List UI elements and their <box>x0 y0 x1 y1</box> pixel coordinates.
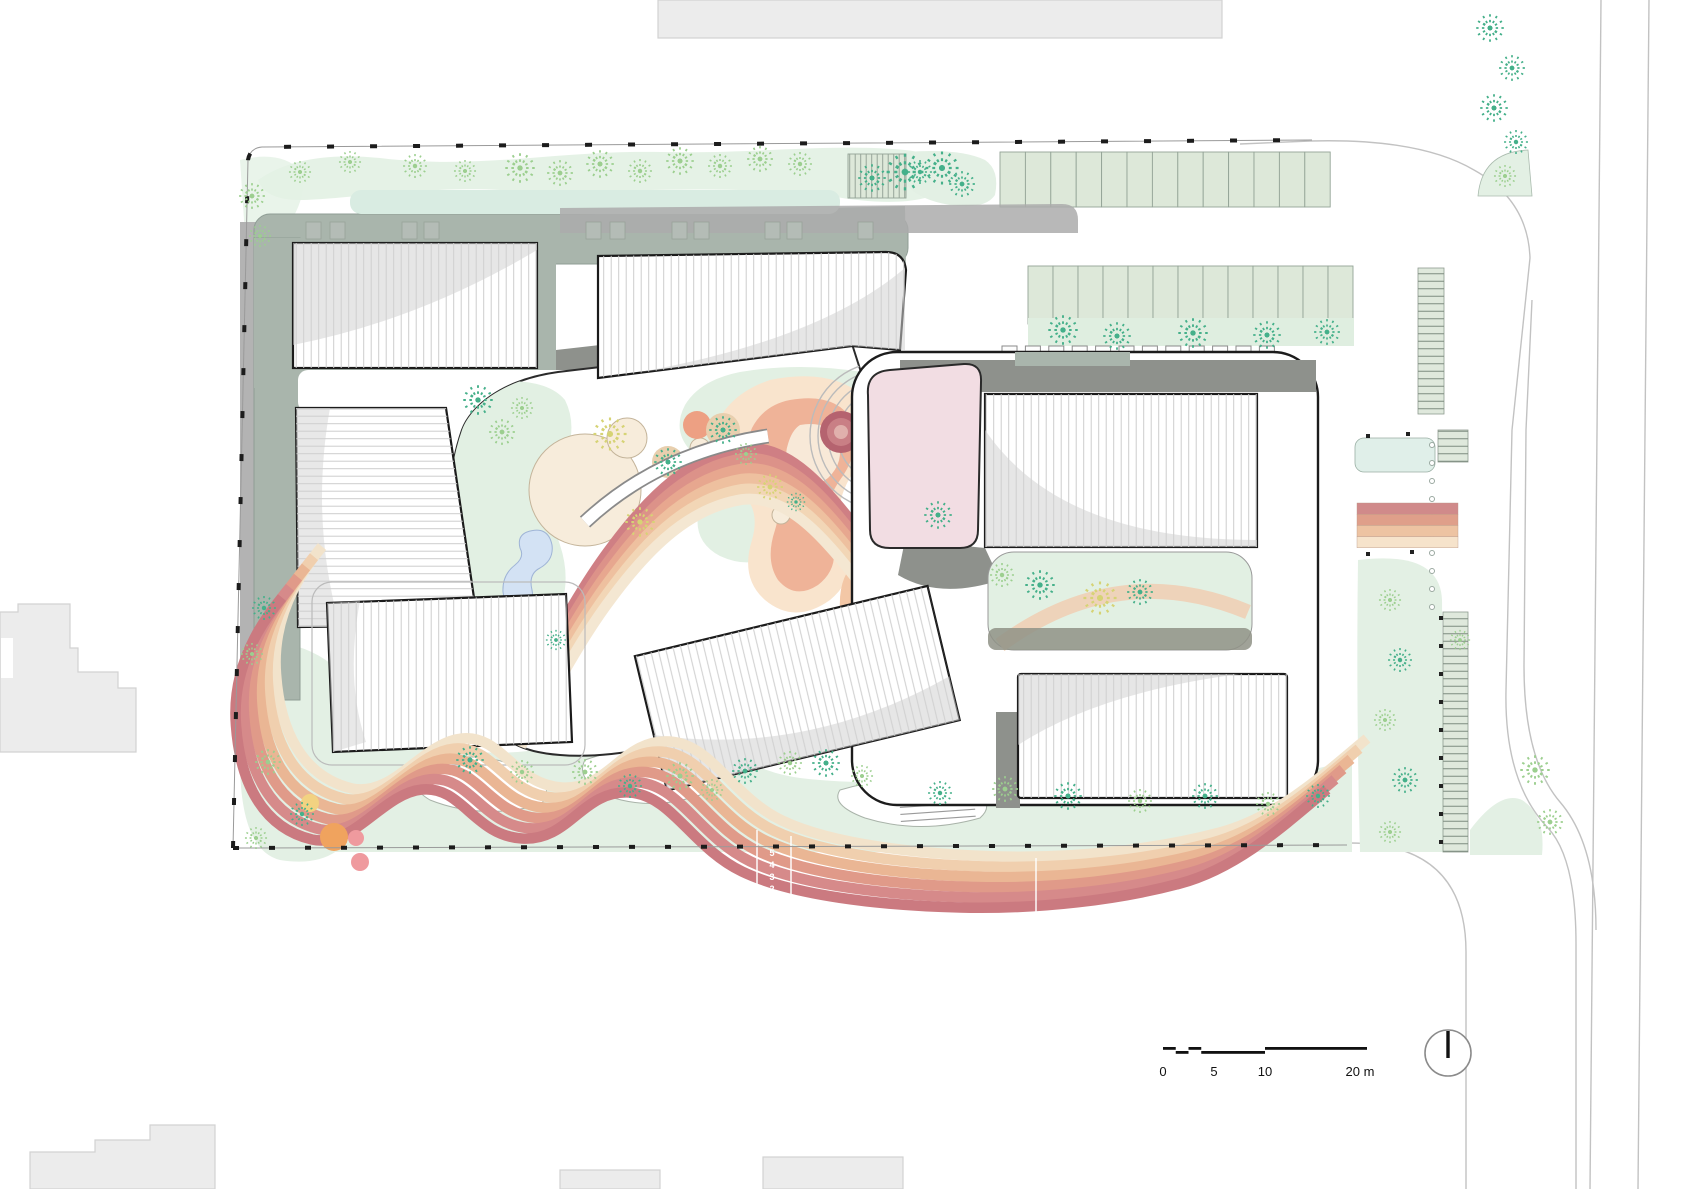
scale-tick-0: 0 <box>1159 1064 1166 1079</box>
lane-number-4: 4 <box>769 860 774 870</box>
kerb-bottom-right <box>1248 843 1466 1189</box>
building-1-top-left <box>293 243 537 368</box>
site-plan-canvas: 5 4 3 2 1 <box>0 0 1700 1189</box>
green-column-right <box>1357 558 1444 852</box>
neighbour-building-bottom-left <box>30 1125 215 1189</box>
podium-north-canopy <box>560 204 1078 233</box>
neighbour-building-bottom-right <box>763 1157 903 1189</box>
north-arrow-icon <box>1425 1030 1471 1076</box>
lane-number-3: 3 <box>769 872 774 882</box>
lane-number-2: 2 <box>769 884 774 894</box>
right-cluster-garden <box>988 552 1252 650</box>
green-pocket-track-stub <box>1355 438 1435 472</box>
track-lane-numbers: 5 4 3 2 1 <box>769 848 774 906</box>
building-pink-roof <box>868 364 981 548</box>
track-stub-right <box>1357 503 1458 548</box>
scale-tick-20m: 20 m <box>1346 1064 1375 1079</box>
scale-bar: 0 5 10 20 m <box>1159 1047 1374 1079</box>
lane-number-5: 5 <box>769 848 774 858</box>
building-3-left-mid <box>296 408 478 627</box>
neighbour-building-bottom-mid <box>560 1170 660 1189</box>
parking-row-2 <box>1028 266 1353 324</box>
neighbour-building-left <box>0 604 136 752</box>
building-6-bottom-right <box>1018 674 1287 798</box>
road-line-outer <box>1590 0 1601 1189</box>
neighbour-building-top <box>658 0 1222 38</box>
parking-row-1 <box>1000 152 1330 207</box>
building-4-bottom-left <box>327 594 572 752</box>
right-cluster-sage-strip <box>1015 352 1130 366</box>
building-7-right <box>985 394 1257 547</box>
scale-tick-10: 10 <box>1258 1064 1272 1079</box>
scale-tick-5: 5 <box>1210 1064 1217 1079</box>
lane-number-1: 1 <box>769 896 774 906</box>
road-line-far <box>1638 0 1649 1189</box>
green-quarter-top-right <box>1478 150 1532 196</box>
site-plan-drawing: 5 4 3 2 1 <box>0 0 1700 1189</box>
building-2-top-center <box>598 252 906 378</box>
